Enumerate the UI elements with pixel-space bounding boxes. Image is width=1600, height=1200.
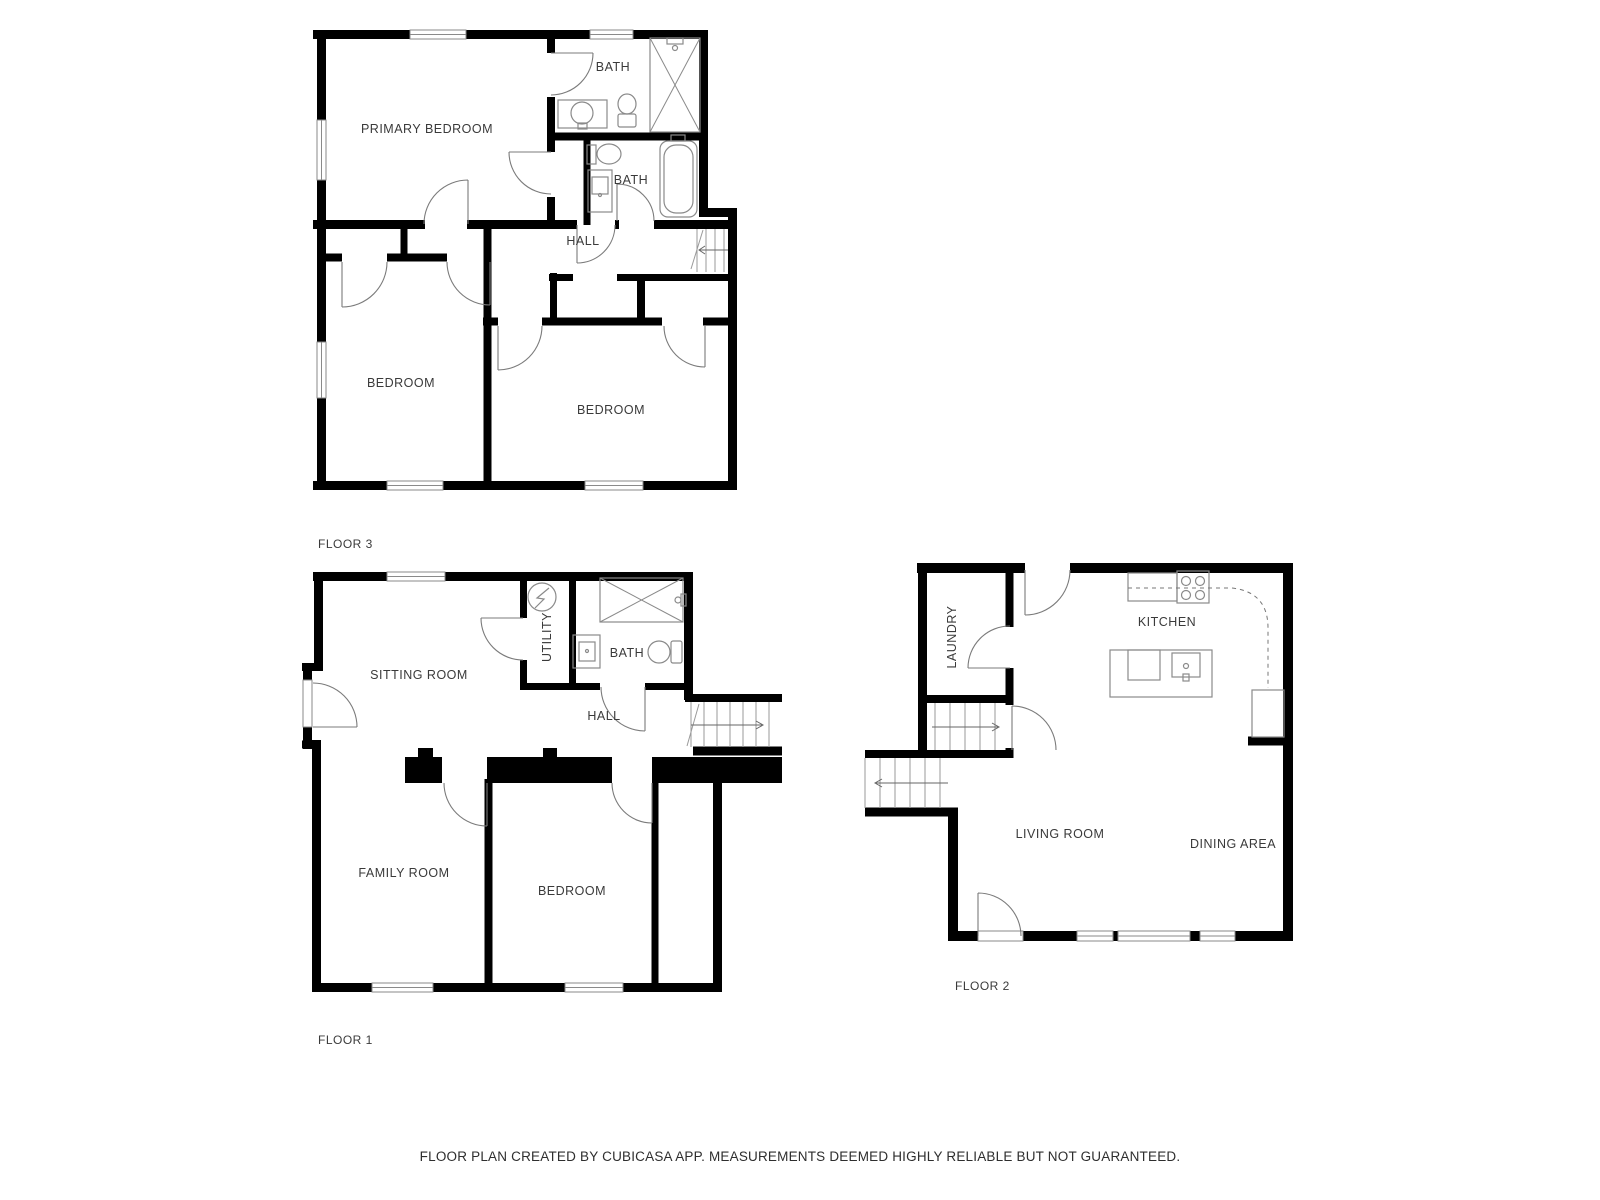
floor3-plan: PRIMARY BEDROOM BATH BATH HALL BEDROOM B… — [313, 30, 737, 551]
door-arc — [978, 893, 1021, 936]
door-arc — [498, 326, 542, 370]
floor1-stairs-icon — [687, 702, 769, 747]
fridge-icon — [1252, 690, 1284, 737]
floor2-stairs-down-icon — [875, 758, 948, 808]
door-arc — [424, 180, 468, 224]
floorplan-page: PRIMARY BEDROOM BATH BATH HALL BEDROOM B… — [0, 0, 1600, 1200]
floor3-interior-walls — [317, 30, 733, 486]
floor3-bedroom-right-label: BEDROOM — [577, 403, 645, 417]
floor3-stairs-icon — [691, 229, 728, 272]
floor2-label: FLOOR 2 — [955, 979, 1010, 993]
floor3-outer-walls — [313, 30, 737, 490]
floor3-hall-label: HALL — [566, 234, 599, 248]
sink-icon — [579, 642, 595, 661]
shower-head-icon — [675, 597, 681, 603]
floor2-stairs-up-icon — [932, 703, 999, 750]
stove-icon — [1177, 571, 1209, 603]
door-arc — [551, 53, 593, 95]
floor1-bath-label: BATH — [610, 646, 644, 660]
door-arc — [1025, 570, 1070, 615]
floor2-plan: LAUNDRY KITCHEN LIVING ROOM DINING AREA … — [865, 563, 1293, 993]
floor2-kitchen-fixtures — [1110, 571, 1284, 737]
door-arc — [968, 626, 1010, 668]
door-arc — [444, 783, 487, 826]
floor2-living-room-label: LIVING ROOM — [1016, 827, 1105, 841]
vanity-icon — [573, 635, 600, 668]
floor1-utility-fixtures — [528, 583, 556, 611]
door-arc — [509, 152, 551, 194]
floorplan-canvas: PRIMARY BEDROOM BATH BATH HALL BEDROOM B… — [0, 0, 1600, 1200]
floor3-label: FLOOR 3 — [318, 537, 373, 551]
counter-icon — [1128, 573, 1177, 601]
floor1-sitting-room-label: SITTING ROOM — [370, 668, 468, 682]
electrical-panel-icon — [528, 583, 556, 611]
footer-disclaimer: FLOOR PLAN CREATED BY CUBICASA APP. MEAS… — [420, 1149, 1181, 1164]
floor1-bedroom-label: BEDROOM — [538, 884, 606, 898]
door-arc — [664, 326, 705, 367]
kitchen-island-icon — [1110, 650, 1212, 697]
floor3-windows — [317, 30, 643, 490]
sink-icon — [592, 177, 608, 194]
door-arc — [612, 783, 652, 823]
floor3-bath-top-fixtures — [558, 38, 700, 132]
floor2-notch-walls — [865, 563, 1293, 812]
floor3-bath-mid-label: BATH — [614, 173, 648, 187]
toilet-icon — [618, 94, 636, 114]
door-arc — [342, 262, 387, 307]
floor3-bedroom-left-label: BEDROOM — [367, 376, 435, 390]
floor1-utility-label: UTILITY — [540, 612, 554, 662]
floor2-interior-walls — [865, 564, 1010, 758]
floor2-laundry-label: LAUNDRY — [945, 605, 959, 668]
floor1-hall-label: HALL — [587, 709, 620, 723]
floor1-label: FLOOR 1 — [318, 1033, 373, 1047]
floor3-bath-top-label: BATH — [596, 60, 630, 74]
floor2-kitchen-label: KITCHEN — [1138, 615, 1196, 629]
door-arc — [1012, 706, 1056, 750]
floor1-family-room-label: FAMILY ROOM — [358, 866, 449, 880]
bathtub-icon — [660, 141, 697, 217]
floor1-stairs-walls — [489, 698, 783, 992]
door-arc — [481, 618, 523, 660]
toilet-icon — [648, 641, 670, 663]
door-arc — [617, 184, 654, 221]
sink-icon — [571, 102, 593, 124]
floor2-dining-area-label: DINING AREA — [1190, 837, 1276, 851]
door-arc — [313, 683, 357, 727]
floor3-primary-bedroom-label: PRIMARY BEDROOM — [361, 122, 493, 136]
floor1-plan: SITTING ROOM UTILITY BATH HALL FAMILY RO… — [302, 572, 782, 1047]
